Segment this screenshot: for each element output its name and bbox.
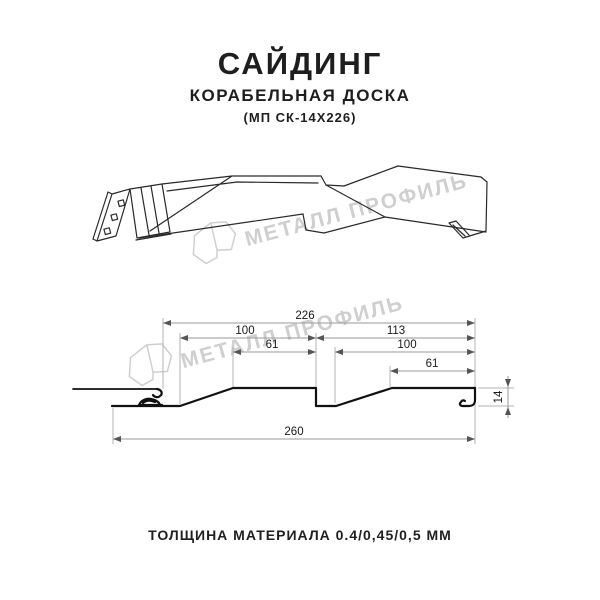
left-lock-hook: [139, 389, 162, 405]
dim-overall-width-label: 226: [295, 310, 314, 322]
dim-left-flat-width-label: 61: [266, 339, 279, 351]
watermark-lower: МЕТАЛЛ ПРОФИЛЬ: [123, 278, 407, 388]
right-j-hook: [460, 388, 475, 406]
drawing-canvas: МЕТАЛЛ ПРОФИЛЬ МЕТАЛЛ ПРОФИЛЬ: [0, 0, 600, 600]
metall-profil-logo-icon: [123, 339, 177, 388]
material-thickness-note: ТОЛЩИНА МАТЕРИАЛА 0.4/0,45/0,5 ММ: [0, 527, 600, 543]
watermark-upper: МЕТАЛЛ ПРОФИЛЬ: [187, 156, 471, 266]
dim-right-flat-width-label: 100: [397, 339, 416, 351]
dim-profile-height-label: 14: [493, 390, 505, 403]
panel-lock-folds: [130, 184, 171, 240]
dim-right-board-width-label: 113: [387, 325, 405, 337]
profile-outline: [73, 388, 475, 406]
watermark-text: МЕТАЛЛ ПРОФИЛЬ: [178, 291, 406, 373]
dimension-lines: [113, 323, 508, 439]
dim-total-width-label: 260: [284, 426, 303, 438]
dim-left-board-width-label: 100: [235, 325, 254, 337]
product-drawing-page: САЙДИНГ КОРАБЕЛЬНАЯ ДОСКА (МП СК-14Х226)…: [0, 0, 600, 600]
profile-main-path: [112, 388, 475, 406]
dim-right-inner-flat-width-label: 61: [426, 358, 439, 370]
